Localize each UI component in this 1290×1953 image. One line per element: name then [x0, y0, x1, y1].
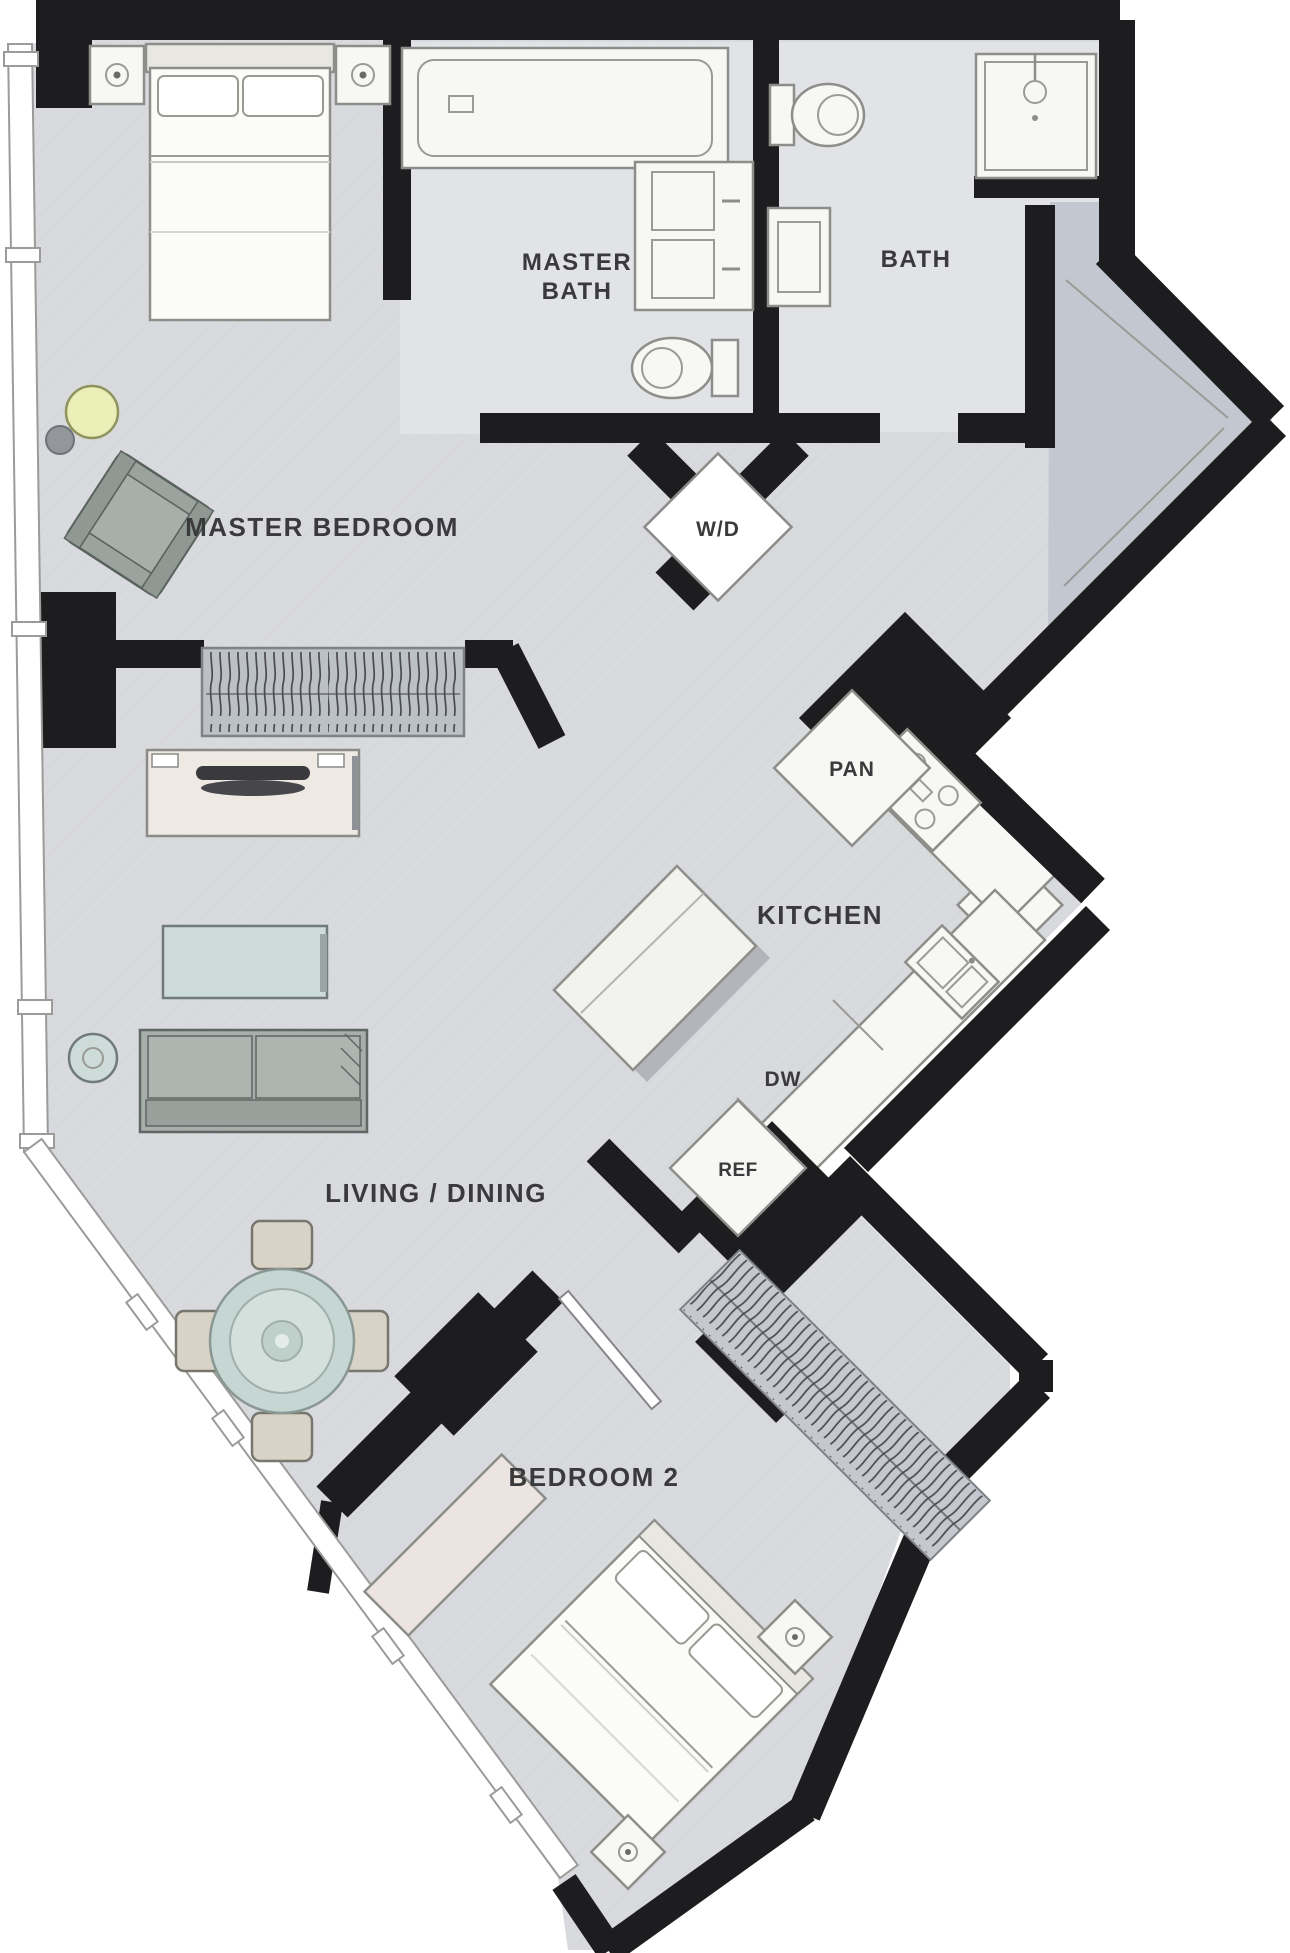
sofa	[140, 1030, 367, 1132]
shower-drain-icon	[1032, 115, 1038, 121]
lamp-dot-icon	[625, 1849, 631, 1855]
hanging-clothes-icon	[206, 652, 322, 732]
tv-icon	[196, 766, 310, 780]
toilet-tank	[770, 85, 794, 145]
pillow	[158, 76, 238, 116]
tv-console	[147, 750, 359, 836]
toilet-icon	[792, 84, 864, 146]
sofa-back	[146, 1100, 361, 1126]
master-closet	[202, 648, 464, 736]
shower	[976, 54, 1096, 178]
sofa-cushion	[256, 1036, 360, 1098]
wall-mbed-closet-arm	[112, 640, 204, 668]
floor-lamp-base-icon	[46, 426, 74, 454]
pillow	[243, 76, 323, 116]
master-bedroom-label: MASTER BEDROOM	[185, 512, 459, 542]
ref-label: REF	[718, 1160, 758, 1181]
wd-label: W/D	[696, 518, 740, 541]
dining-chair	[252, 1413, 312, 1461]
console-shadow	[352, 756, 359, 830]
hanging-clothes-icon	[328, 652, 460, 732]
side-table	[69, 1034, 117, 1082]
toilet-icon	[632, 338, 712, 398]
lamp-dot-icon	[114, 72, 121, 79]
floor-plan-page: MASTER BEDROOM MASTER BATH BATH	[0, 0, 1290, 1953]
kitchen-label: KITCHEN	[757, 900, 883, 930]
lamp-dot-icon	[792, 1634, 798, 1640]
dining-chair	[252, 1221, 312, 1269]
toilet-tank	[712, 340, 738, 396]
sofa-cushion	[148, 1036, 252, 1098]
bedroom2-label: BEDROOM 2	[509, 1462, 680, 1492]
floor-lamp-icon	[66, 386, 118, 438]
master-bath-label-1: MASTER	[522, 249, 632, 276]
lamp-dot-icon	[360, 72, 367, 79]
living-dining-label: LIVING / DINING	[325, 1178, 547, 1208]
coffee-table-shadow	[320, 934, 327, 992]
wall-shower-strip	[974, 176, 1100, 198]
dw-label: DW	[765, 1068, 802, 1091]
window-mullion	[6, 248, 40, 262]
bathtub	[402, 48, 728, 168]
tv-base-icon	[201, 780, 305, 796]
window-mullion	[18, 1000, 52, 1014]
console-handle	[318, 754, 344, 767]
window-mullion	[4, 52, 38, 66]
console-handle	[152, 754, 178, 767]
wall-topleft-block	[36, 0, 92, 108]
bath-label: BATH	[881, 246, 952, 273]
window-mullion	[12, 622, 46, 636]
master-bath-label-2: BATH	[542, 278, 613, 305]
coffee-table	[163, 926, 327, 998]
pan-label: PAN	[829, 758, 875, 781]
wall-living-bed2-chunk	[424, 1322, 508, 1406]
dining-table-dot	[275, 1334, 289, 1348]
floor-plan: MASTER BEDROOM MASTER BATH BATH	[0, 0, 1290, 1953]
